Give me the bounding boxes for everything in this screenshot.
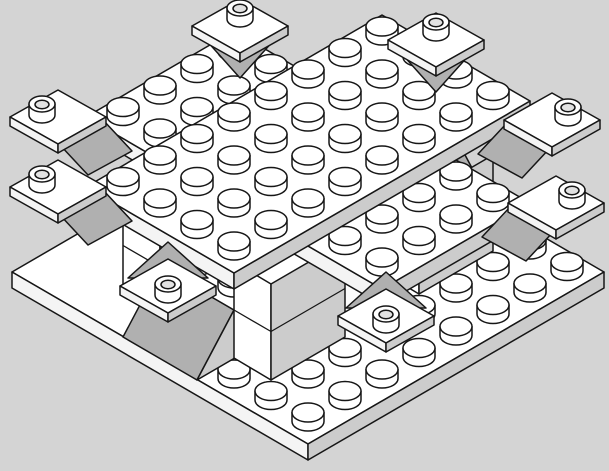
stud	[403, 227, 435, 255]
open-stud	[373, 306, 399, 333]
stud	[218, 146, 250, 174]
stud	[255, 168, 287, 196]
stud	[366, 103, 398, 131]
stud	[218, 103, 250, 131]
stud	[329, 168, 361, 196]
stud	[366, 248, 398, 276]
stud	[477, 296, 509, 324]
stud	[366, 360, 398, 388]
stud	[477, 82, 509, 110]
stud	[440, 103, 472, 131]
stud	[440, 205, 472, 233]
stud	[292, 103, 324, 131]
open-stud	[423, 14, 449, 41]
stud	[292, 146, 324, 174]
stud	[218, 189, 250, 217]
open-stud	[559, 182, 585, 209]
stud	[292, 403, 324, 431]
stud	[255, 82, 287, 110]
stud	[366, 146, 398, 174]
stud	[181, 211, 213, 239]
stud	[551, 253, 583, 281]
stud	[144, 189, 176, 217]
stud	[329, 82, 361, 110]
stud	[514, 274, 546, 302]
stud	[440, 317, 472, 345]
stud	[329, 125, 361, 153]
open-stud	[227, 0, 253, 27]
stud	[329, 39, 361, 67]
lego-render-svg	[0, 0, 609, 471]
stud	[255, 125, 287, 153]
stud	[107, 168, 139, 196]
stud	[181, 55, 213, 83]
lego-isometric-figure	[0, 0, 609, 471]
stud	[144, 146, 176, 174]
stud	[329, 382, 361, 410]
open-stud	[29, 166, 55, 193]
stud	[477, 184, 509, 212]
stud	[255, 211, 287, 239]
open-stud	[555, 99, 581, 126]
stud	[366, 60, 398, 88]
stud	[403, 339, 435, 367]
stud	[144, 76, 176, 104]
stud	[218, 232, 250, 260]
stud	[107, 98, 139, 126]
stud	[181, 168, 213, 196]
open-stud	[29, 96, 55, 123]
stud	[292, 60, 324, 88]
stud	[181, 125, 213, 153]
stud	[255, 382, 287, 410]
stud	[403, 125, 435, 153]
stud	[292, 189, 324, 217]
open-stud	[155, 276, 181, 303]
